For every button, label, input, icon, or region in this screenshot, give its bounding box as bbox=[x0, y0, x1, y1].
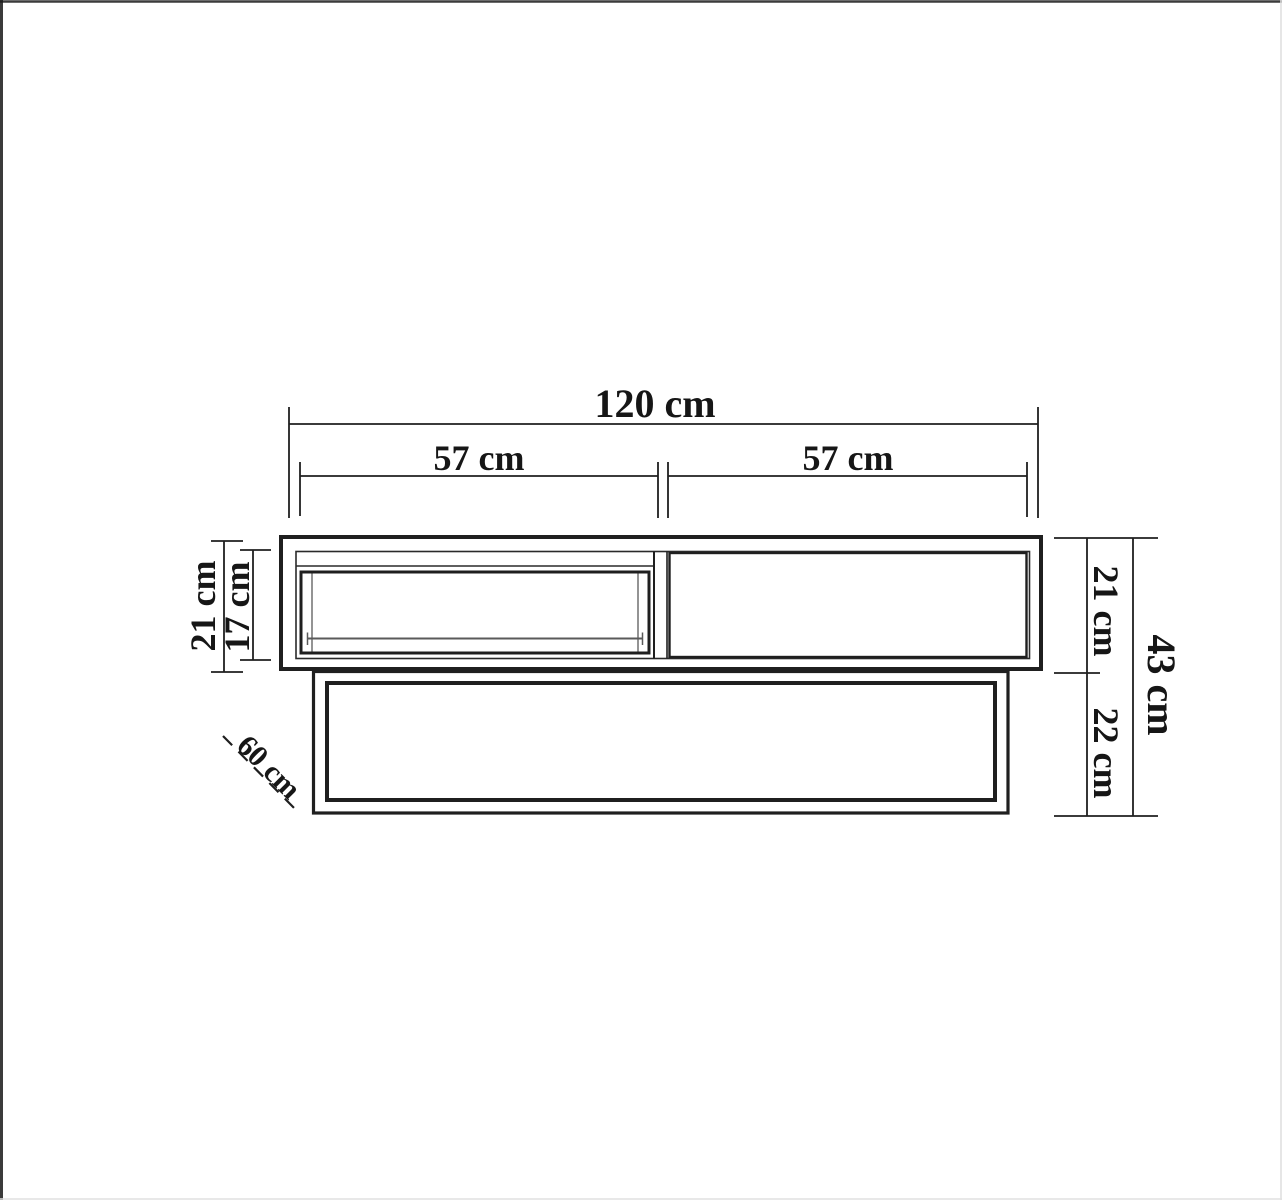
top-unit bbox=[281, 537, 1041, 669]
dim-drawer-front-height-label: 17 cm bbox=[217, 562, 257, 653]
dim-total-width-label: 120 cm bbox=[594, 381, 715, 426]
drawer-front bbox=[301, 572, 649, 653]
dim-base-unit-height-label: 22 cm bbox=[1086, 708, 1126, 799]
base-unit bbox=[314, 672, 1009, 814]
base-unit-opening bbox=[327, 683, 995, 800]
dim-total-height-label: 43 cm bbox=[1139, 634, 1184, 735]
drawing-canvas: 120 cm 57 cm 57 cm 21 cm 17 cm 21 cm 22 … bbox=[0, 0, 1282, 1200]
right-niche bbox=[670, 553, 1027, 657]
dim-depth-label: 60 cm bbox=[230, 729, 307, 806]
dim-left-compartment-width-label: 57 cm bbox=[434, 438, 525, 478]
dim-top-unit-height-right-label: 21 cm bbox=[1086, 566, 1126, 657]
dim-right-compartment-width-label: 57 cm bbox=[803, 438, 894, 478]
